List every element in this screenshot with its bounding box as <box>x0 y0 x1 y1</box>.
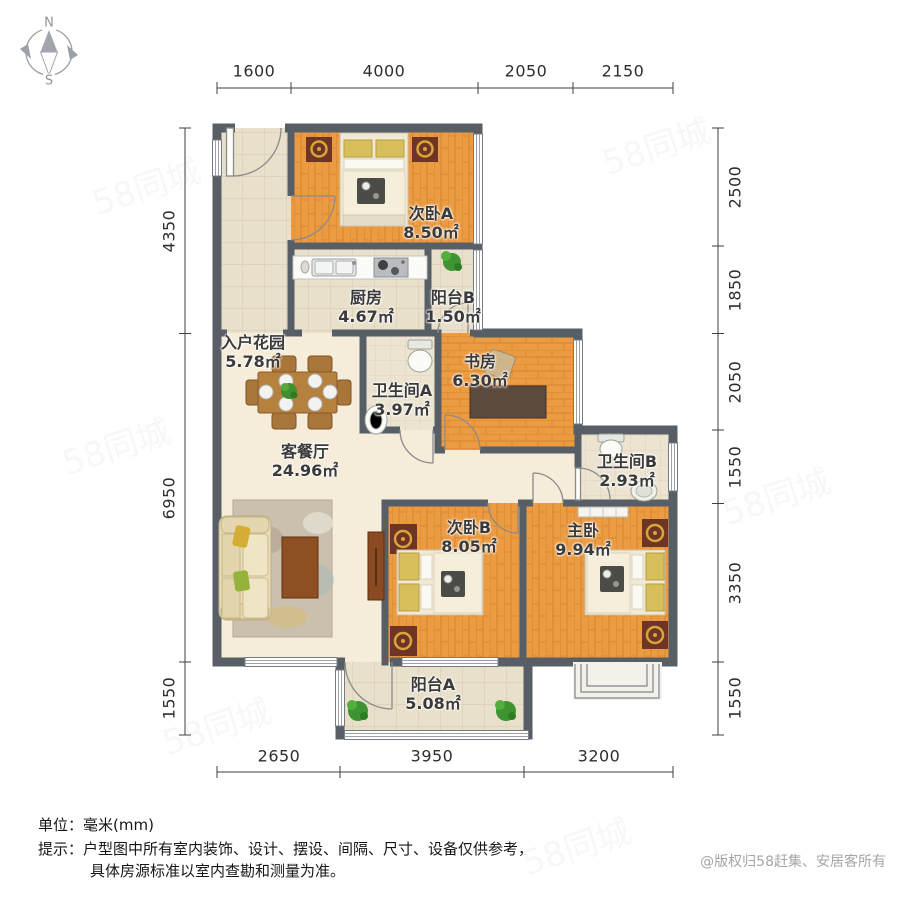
dim-line-left <box>179 128 191 735</box>
dim-bottom-3200: 3200 <box>578 747 621 766</box>
room-area: 3.97㎡ <box>372 400 432 419</box>
room-name: 卫生间B <box>597 452 657 471</box>
dim-line-bottom <box>217 766 673 778</box>
room-label-bathroom-a: 卫生间A 3.97㎡ <box>372 381 432 419</box>
dim-right-2050: 2050 <box>726 361 745 404</box>
dim-left-1550: 1550 <box>160 677 179 720</box>
room-area: 8.05㎡ <box>441 537 496 556</box>
living-window <box>245 658 337 667</box>
room-label-balcony-b: 阳台B 1.50㎡ <box>425 288 480 326</box>
room-area: 24.96㎡ <box>272 461 339 480</box>
room-label-balcony-a: 阳台A 5.08㎡ <box>405 675 460 713</box>
dim-right-2500: 2500 <box>726 166 745 209</box>
dim-line-right <box>712 128 724 735</box>
dim-left-4350: 4350 <box>160 210 179 253</box>
study-window <box>574 340 583 424</box>
dim-bottom-2650: 2650 <box>258 747 301 766</box>
compass-icon <box>20 29 78 75</box>
dim-line-top <box>217 82 673 94</box>
room-name: 卫生间A <box>372 381 432 400</box>
dim-top-2050: 2050 <box>505 62 548 81</box>
coffee-table-icon <box>282 537 318 598</box>
bedroom-b-window <box>402 658 498 667</box>
entry-garden-window <box>213 140 222 176</box>
dim-right-3350: 3350 <box>726 562 745 605</box>
dim-bottom-3950: 3950 <box>411 747 454 766</box>
room-label-living-dining: 客餐厅 24.96㎡ <box>272 442 339 480</box>
kitchen-counter-icon <box>293 256 427 279</box>
master-bay-window <box>573 662 662 700</box>
balcony-a-front-window <box>345 731 529 740</box>
room-label-study: 书房 6.30㎡ <box>452 352 507 390</box>
room-name: 书房 <box>452 352 507 371</box>
room-area: 9.94㎡ <box>555 540 610 559</box>
room-area: 1.50㎡ <box>425 307 480 326</box>
bedroom-a-window <box>474 134 483 244</box>
room-name: 次卧A <box>403 204 458 223</box>
sofa-icon <box>219 516 271 620</box>
dim-top-2150: 2150 <box>602 62 645 81</box>
toilet-icon <box>408 340 432 349</box>
dim-right-1850: 1850 <box>726 269 745 312</box>
room-label-bedroom-b: 次卧B 8.05㎡ <box>441 518 496 556</box>
room-area: 6.30㎡ <box>452 371 507 390</box>
copyright-notice: @版权归58赶集、安居客所有 <box>700 851 886 871</box>
dim-right-1550b: 1550 <box>726 677 745 720</box>
compass-north-label: N <box>42 16 56 31</box>
dim-top-1600: 1600 <box>233 62 276 81</box>
room-label-master-bedroom: 主卧 9.94㎡ <box>555 521 610 559</box>
pillow <box>233 570 251 592</box>
balcony-a-side-window <box>336 670 345 726</box>
room-name: 厨房 <box>338 288 393 307</box>
dim-left-6950: 6950 <box>160 477 179 520</box>
room-name: 客餐厅 <box>272 442 339 461</box>
room-name: 阳台A <box>405 675 460 694</box>
room-area: 5.08㎡ <box>405 694 460 713</box>
room-area: 8.50㎡ <box>403 223 458 242</box>
footer-tip-line1: 提示：户型图中所有室内装饰、设计、摆设、间隔、尺寸、设备仅供参考， <box>38 838 533 859</box>
room-label-kitchen: 厨房 4.67㎡ <box>338 288 393 326</box>
room-label-entry-garden: 入户花园 5.78㎡ <box>221 333 285 371</box>
footer-unit-note: 单位：毫米(mm) <box>38 814 154 835</box>
room-name: 主卧 <box>555 521 610 540</box>
room-name: 次卧B <box>441 518 496 537</box>
dim-top-4000: 4000 <box>363 62 406 81</box>
room-area: 4.67㎡ <box>338 307 393 326</box>
bathroom-b-window <box>669 443 678 491</box>
dim-right-1550a: 1550 <box>726 446 745 489</box>
room-area: 2.93㎡ <box>597 471 657 490</box>
room-name: 阳台B <box>425 288 480 307</box>
room-area: 5.78㎡ <box>221 352 285 371</box>
compass-south-label: S <box>43 74 55 89</box>
room-label-bathroom-b: 卫生间B 2.93㎡ <box>597 452 657 490</box>
room-label-bedroom-a: 次卧A 8.50㎡ <box>403 204 458 242</box>
room-name: 入户花园 <box>221 333 285 352</box>
footer-tip-line2: 具体房源标准以室内查勘和测量为准。 <box>90 860 345 881</box>
